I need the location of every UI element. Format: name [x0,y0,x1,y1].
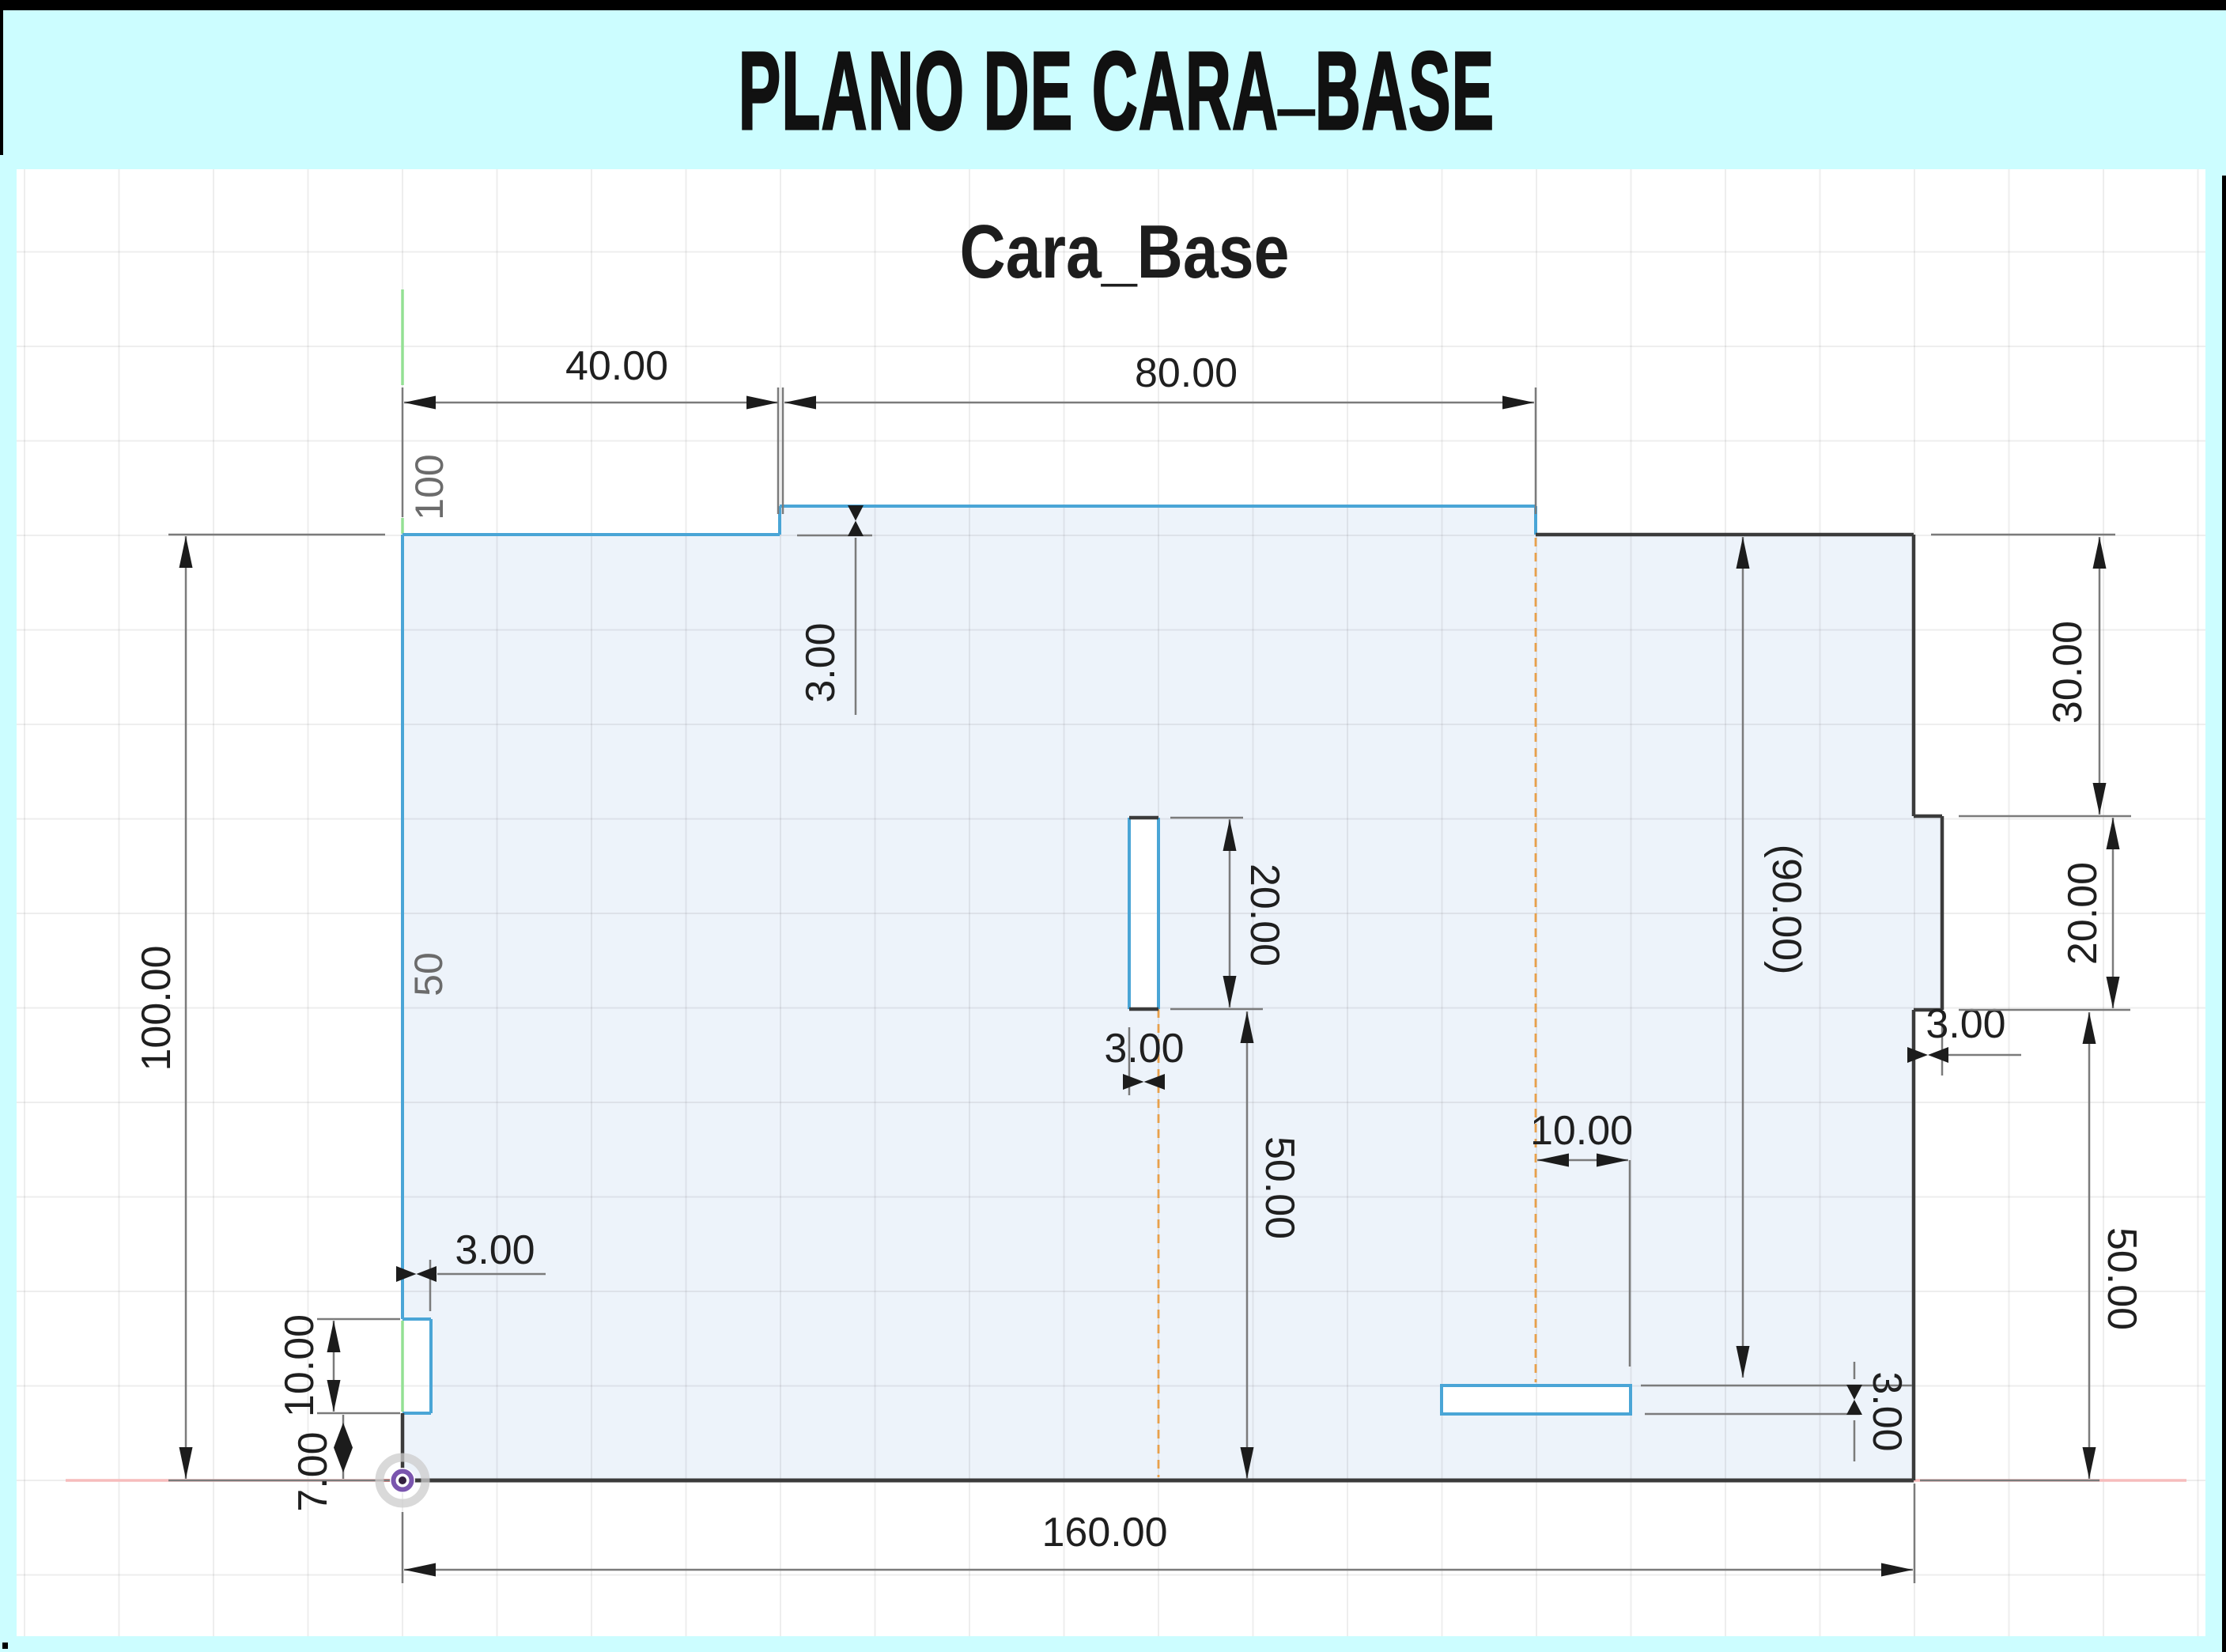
svg-text:10.00: 10.00 [1530,1108,1633,1154]
svg-text:30.00: 30.00 [2045,621,2091,724]
svg-text:3.00: 3.00 [1926,1001,2005,1047]
svg-text:3.00: 3.00 [798,622,844,702]
svg-text:3.00: 3.00 [1104,1026,1184,1072]
svg-text:3.00: 3.00 [1864,1371,1910,1451]
svg-text:80.00: 80.00 [1135,350,1238,396]
svg-text:160.00: 160.00 [1041,1510,1167,1556]
svg-text:7.00: 7.00 [290,1431,336,1511]
svg-text:20.00: 20.00 [2060,862,2106,965]
svg-text:40.00: 40.00 [565,343,668,389]
svg-text:50.00: 50.00 [2099,1227,2145,1330]
svg-text:3.00: 3.00 [455,1227,535,1273]
svg-text:50.00: 50.00 [1257,1136,1302,1239]
svg-text:50: 50 [406,952,451,996]
svg-text:(90.00): (90.00) [1763,845,1809,975]
svg-text:10.00: 10.00 [277,1314,323,1417]
svg-text:100: 100 [407,454,452,520]
svg-text:20.00: 20.00 [1241,864,1287,966]
svg-text:Cara_Base: Cara_Base [960,209,1290,293]
svg-text:100.00: 100.00 [134,945,180,1071]
